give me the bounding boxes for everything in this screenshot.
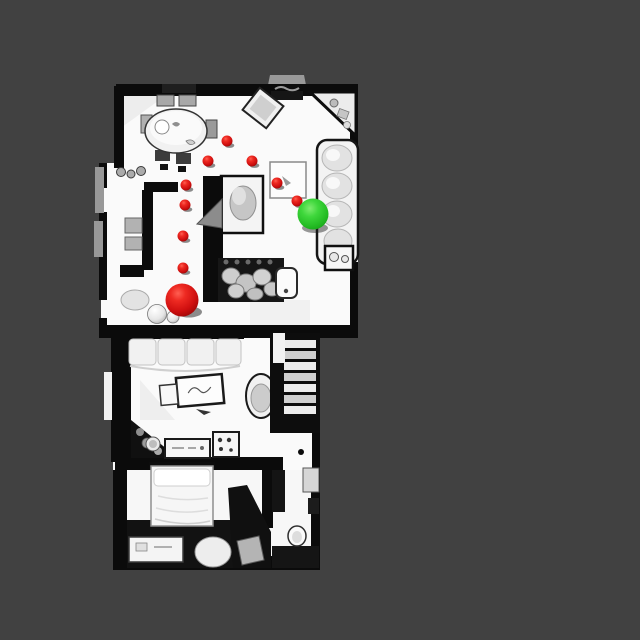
- counter-cooktop: [325, 246, 353, 270]
- waypoint-marker: [181, 180, 192, 191]
- scene-viewport[interactable]: [0, 0, 640, 640]
- storage-cube: [237, 536, 264, 565]
- staircase: [270, 333, 320, 433]
- tufted-couch: [218, 258, 284, 302]
- dresser: [165, 439, 210, 458]
- wall-shelf: [271, 87, 303, 100]
- center-armchair: [221, 176, 263, 233]
- vanity-stool: [146, 437, 160, 451]
- floorplan-canvas: [0, 0, 640, 640]
- bed: [149, 462, 215, 526]
- waypoint-marker: [180, 200, 191, 211]
- dining-table: [145, 109, 207, 153]
- writing-desk: [129, 537, 183, 562]
- waypoint-marker: [178, 231, 189, 242]
- window-bays: [94, 167, 104, 257]
- side-cabinet: [213, 432, 239, 457]
- goal-marker: [298, 199, 329, 230]
- pouf: [195, 537, 231, 567]
- waypoint-marker: [247, 156, 258, 167]
- agent-marker: [166, 284, 199, 317]
- annex-seat: [121, 290, 149, 310]
- floor-dot: [298, 449, 304, 455]
- waypoint-marker: [222, 136, 233, 147]
- side-table: [276, 268, 297, 298]
- waypoint-marker: [203, 156, 214, 167]
- waypoint-marker: [178, 263, 189, 274]
- waypoint-marker: [272, 178, 283, 189]
